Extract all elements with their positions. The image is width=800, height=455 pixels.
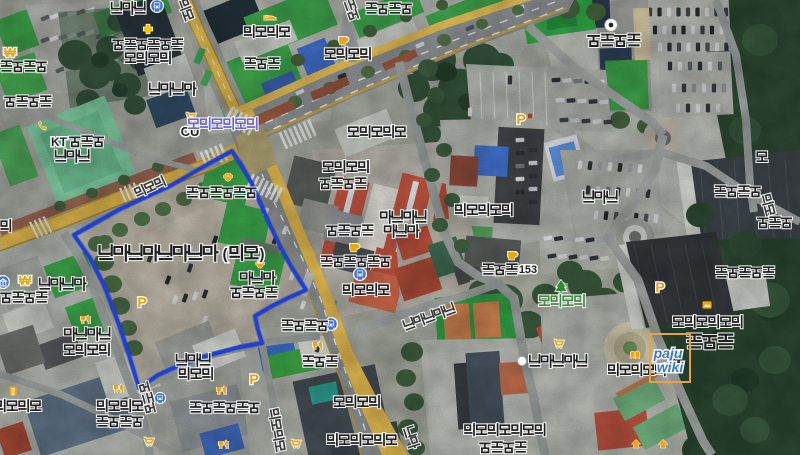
svg-text:KT: KT bbox=[51, 135, 68, 149]
svg-text:153: 153 bbox=[519, 264, 537, 276]
svg-text:(: ( bbox=[223, 246, 228, 263]
svg-text:CU: CU bbox=[181, 124, 200, 139]
svg-text:): ) bbox=[260, 246, 265, 263]
svg-text:wiki: wiki bbox=[657, 359, 685, 375]
